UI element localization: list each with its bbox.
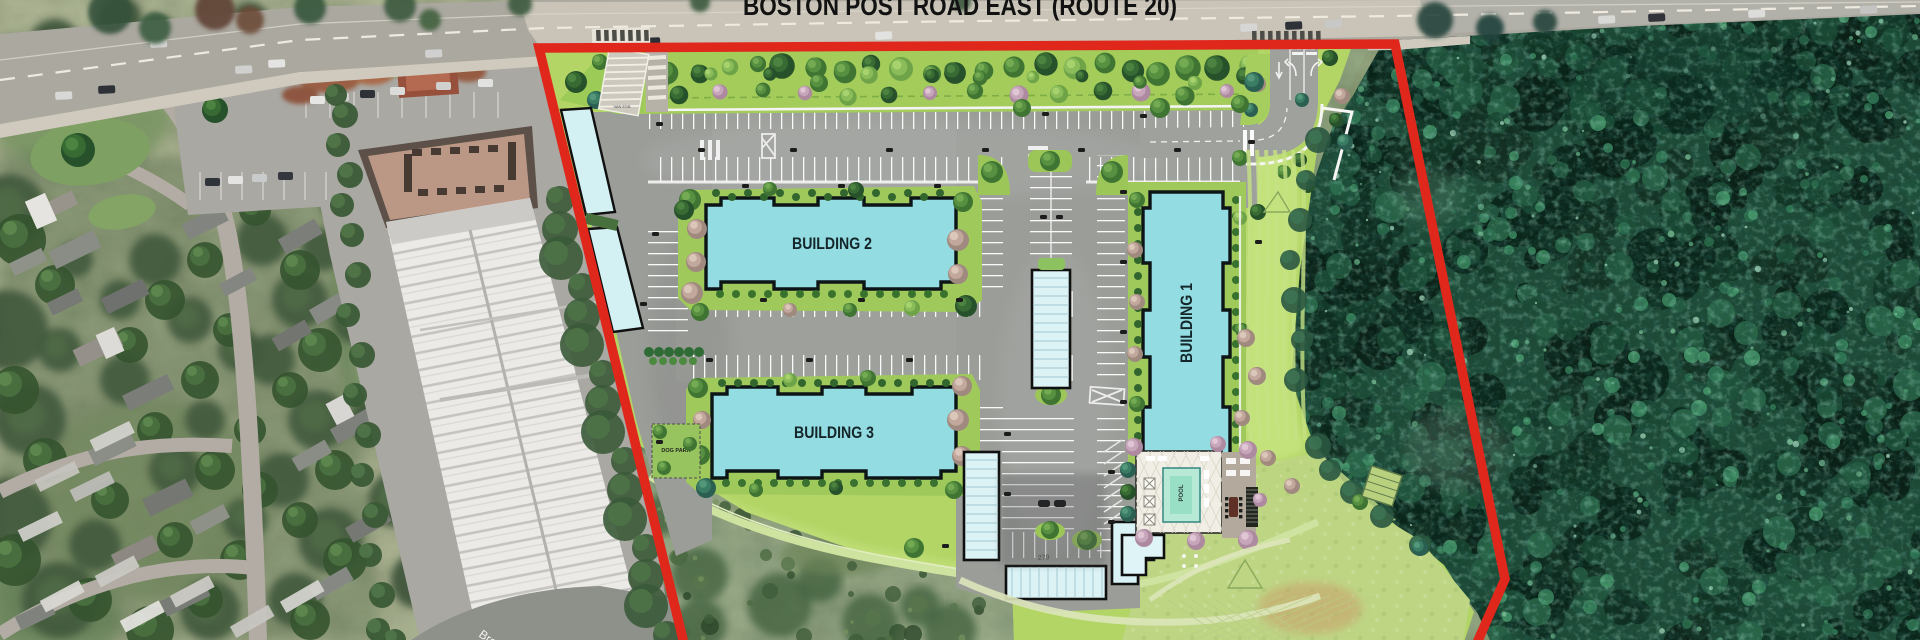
svg-text:BUILDING 1: BUILDING 1 [1177, 283, 1196, 363]
svg-text:BUILDING 2: BUILDING 2 [792, 234, 872, 253]
svg-text:VAN ESB: VAN ESB [613, 104, 630, 109]
svg-text:BOSTON POST ROAD EAST (ROUTE 2: BOSTON POST ROAD EAST (ROUTE 20) [743, 0, 1177, 21]
svg-text:279: 279 [1038, 554, 1050, 562]
svg-text:BUILDING 3: BUILDING 3 [794, 423, 874, 442]
svg-text:POOL: POOL [1179, 484, 1185, 501]
